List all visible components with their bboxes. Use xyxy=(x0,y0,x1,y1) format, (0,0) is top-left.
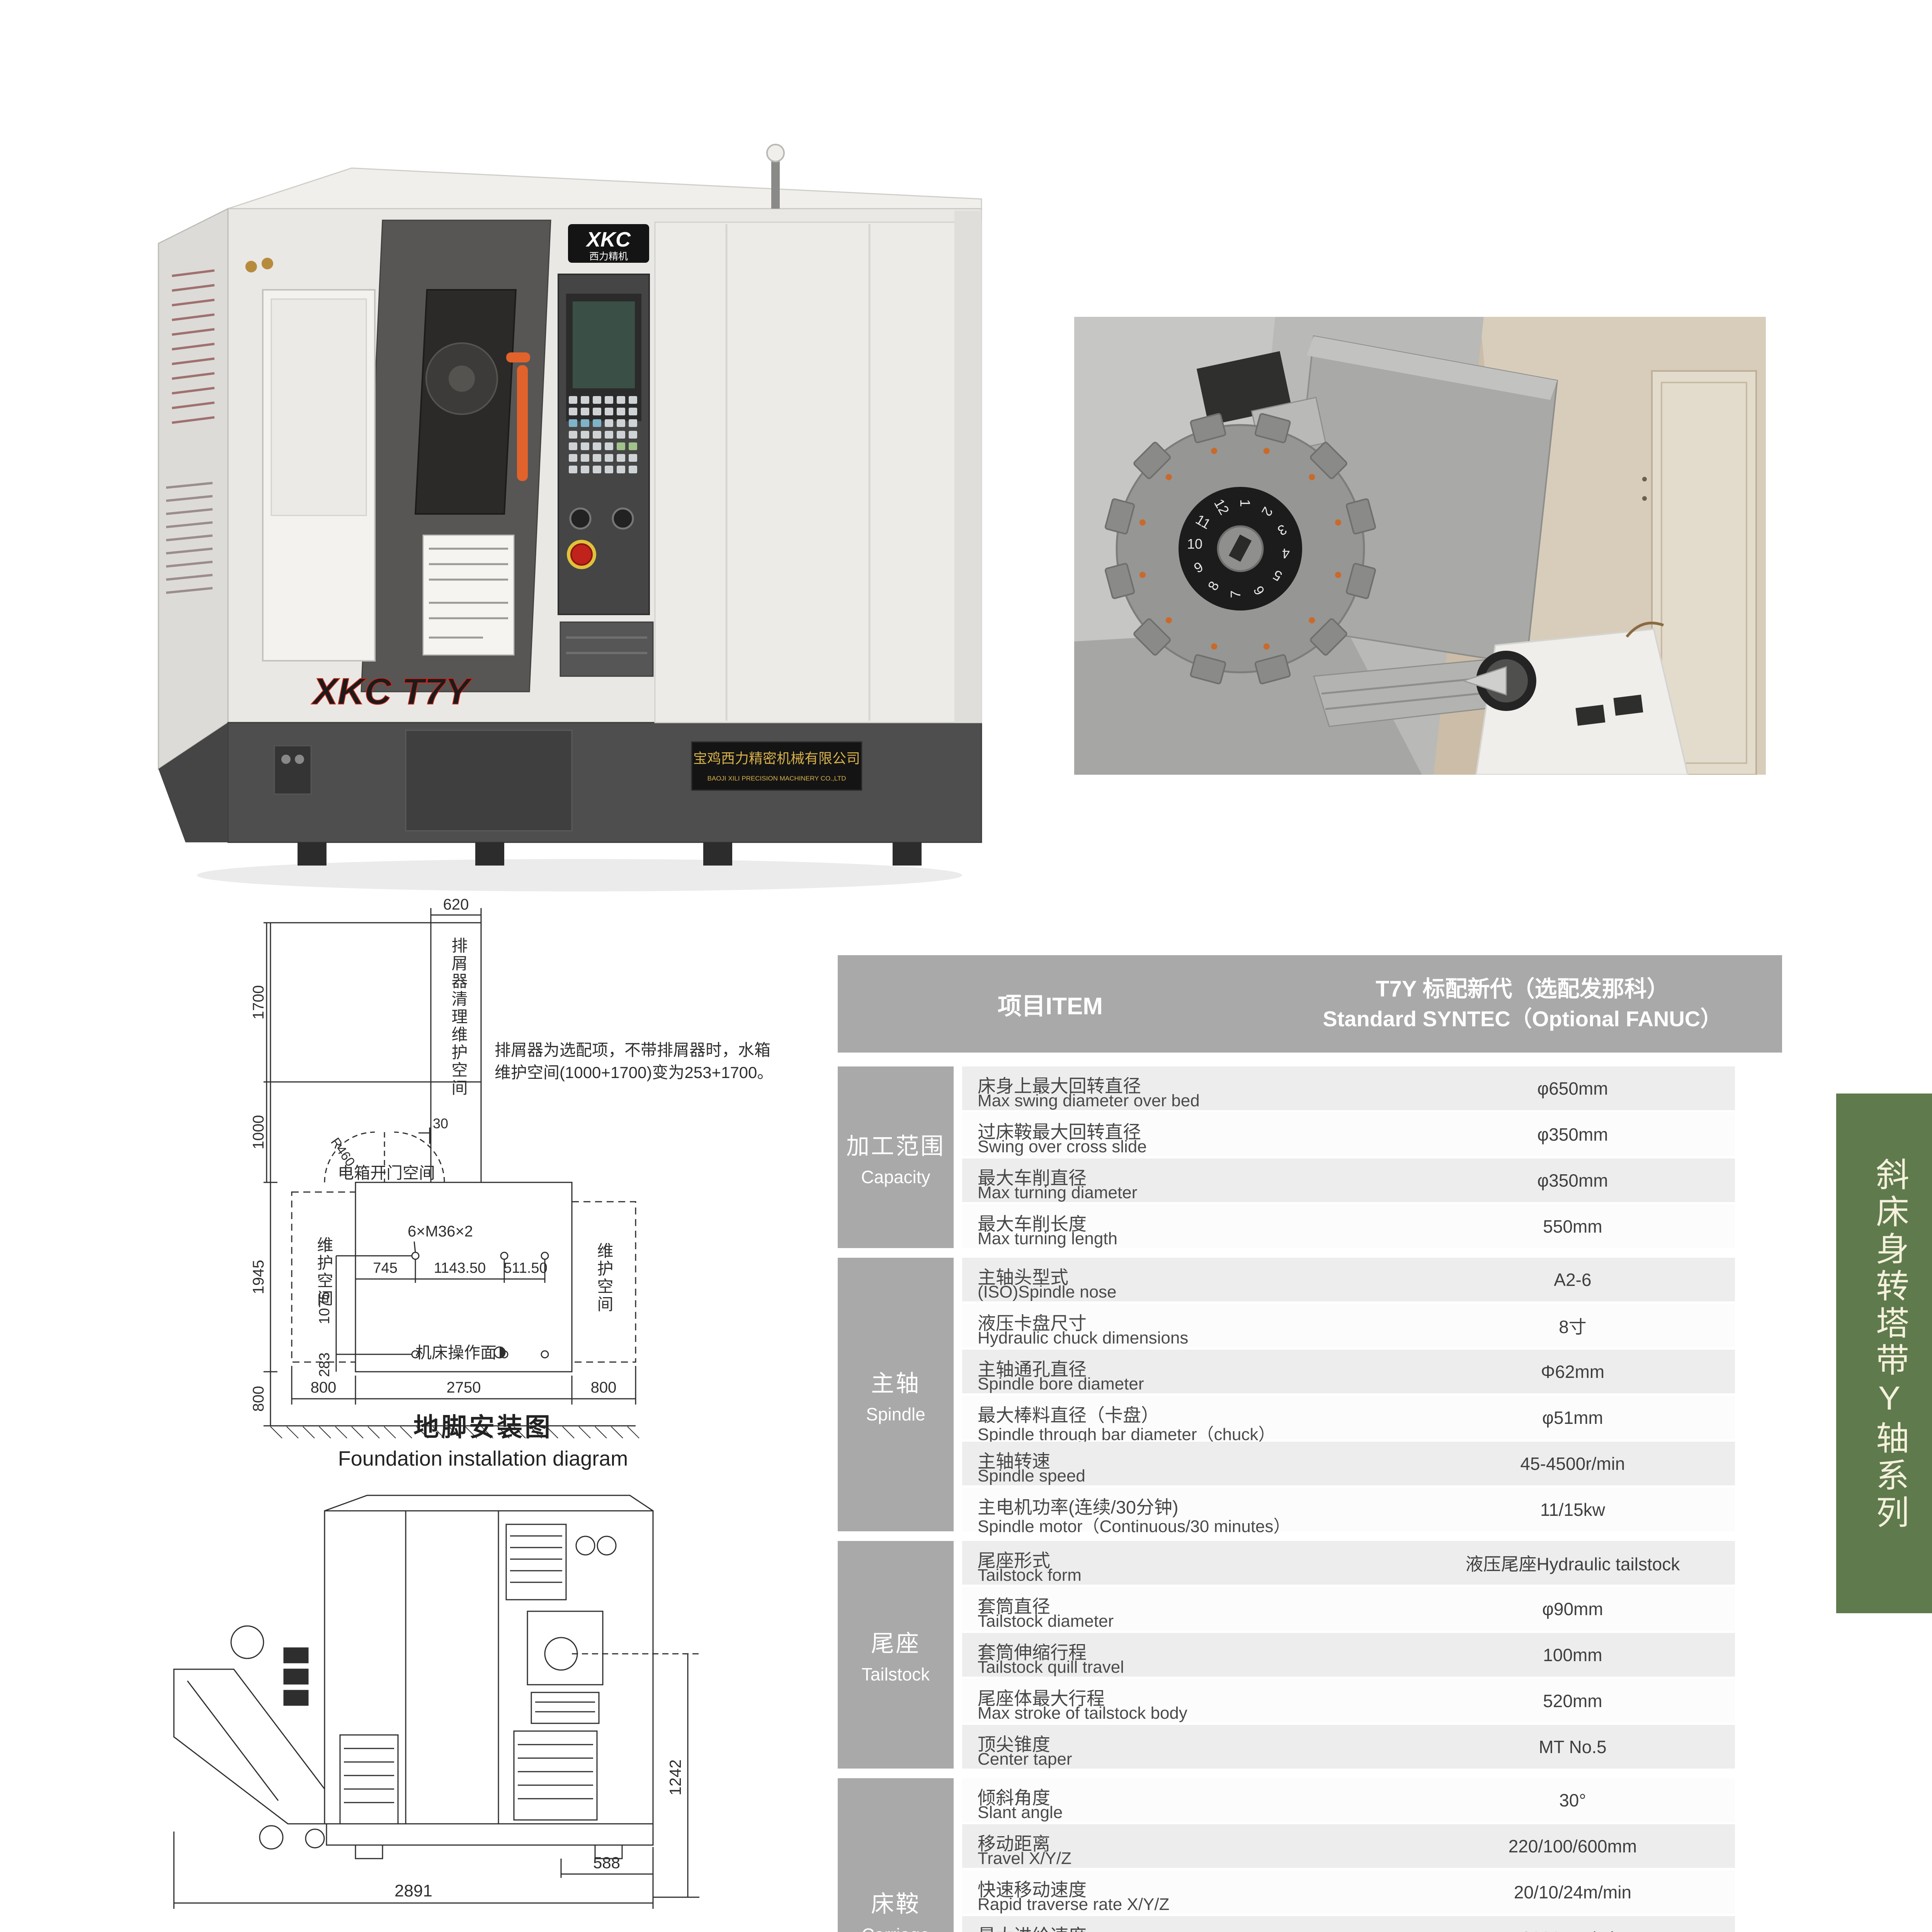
door-handle xyxy=(517,365,528,481)
spec-row: 最大车削长度Max turning length550mm xyxy=(962,1204,1735,1248)
label-maintain-right: 维护空间 xyxy=(592,1242,616,1313)
spec-row: 主轴头型式(ISO)Spindle noseA2-6 xyxy=(962,1258,1735,1301)
spec-table-body: 加工范围Capacity床身上最大回转直径Max swing diameter … xyxy=(838,1066,1782,1932)
spec-row: 主电机功率(连续/30分钟)Spindle motor（Continuous/3… xyxy=(962,1488,1735,1531)
spec-value: 45-4500r/min xyxy=(1406,1442,1739,1485)
spec-value: 8寸 xyxy=(1406,1304,1739,1347)
spec-row: 套筒伸缩行程Tailstock quill travel100mm xyxy=(962,1633,1735,1677)
xkc-logo-sub: 西力精机 xyxy=(589,251,628,262)
spec-row: 主轴转速Spindle speed45-4500r/min xyxy=(962,1442,1735,1485)
label-maintain-left: 维护空间 xyxy=(312,1236,336,1308)
spec-item-en: Swing over cross slide xyxy=(978,1137,1147,1156)
spec-item-en: (ISO)Spindle nose xyxy=(978,1282,1117,1302)
note-line1: 排屑器为选配项，不带排屑器时，水箱 xyxy=(495,1041,770,1059)
spec-table-header: 项目ITEM T7Y 标配新代（选配发那科） Standard SYNTEC（O… xyxy=(838,955,1782,1053)
switch-dot xyxy=(281,755,291,764)
spec-value: MT No.5 xyxy=(1406,1725,1739,1769)
spec-item-en: Center taper xyxy=(978,1750,1072,1769)
control-screen xyxy=(573,301,635,388)
spec-row: 最大进给速度Max feed speed8000mm/min xyxy=(962,1916,1735,1932)
section-label-zh: 床鞍 xyxy=(871,1885,920,1919)
chip-door xyxy=(406,730,572,831)
foundation-title: 地脚安装图 Foundation installation diagram xyxy=(155,1406,811,1471)
spec-row: 床身上最大回转直径Max swing diameter over bedφ650… xyxy=(962,1066,1735,1110)
control-knob xyxy=(613,509,633,529)
spec-item-en: Max turning length xyxy=(978,1229,1117,1248)
signal-lamp xyxy=(767,145,784,162)
dim-588: 588 xyxy=(593,1854,620,1872)
window-turret-hub xyxy=(449,366,475,392)
section-label-zh: 主轴 xyxy=(871,1365,920,1398)
spec-item-en: Max swing diameter over bed xyxy=(978,1091,1200,1111)
foundation-diagram: 620 1700 1000 1945 800 745 1143.50 511.5… xyxy=(155,896,811,1472)
spec-value: φ51mm xyxy=(1406,1396,1739,1439)
section-label-capacity: 加工范围Capacity xyxy=(838,1066,954,1248)
spec-value: 30° xyxy=(1406,1778,1739,1822)
section-label-en: Capacity xyxy=(861,1167,930,1187)
dim-283: 283 xyxy=(316,1352,333,1377)
fitting-knob xyxy=(262,258,273,269)
spec-value: 100mm xyxy=(1406,1633,1739,1677)
spec-row: 液压卡盘尺寸Hydraulic chuck dimensions8寸 xyxy=(962,1304,1735,1347)
spec-value: 液压尾座Hydraulic tailstock xyxy=(1406,1541,1739,1585)
spec-row: 最大棒料直径（卡盘）Spindle through bar diameter（c… xyxy=(962,1396,1735,1439)
spec-value: A2-6 xyxy=(1406,1258,1739,1301)
spec-item-zh: 最大进给速度 xyxy=(978,1921,1087,1932)
dim-1242: 1242 xyxy=(666,1759,684,1795)
turret-number: 1 xyxy=(1237,499,1253,507)
pendant-tray xyxy=(560,622,653,676)
spec-value: 220/100/600mm xyxy=(1406,1824,1739,1868)
spec-item-en: Spindle motor（Continuous/30 minutes） xyxy=(978,1512,1291,1537)
label-bolt: 6×M36×2 xyxy=(408,1223,473,1240)
dim-620: 620 xyxy=(443,896,469,913)
spec-item-en: Slant angle xyxy=(978,1803,1063,1822)
spec-value: 8000mm/min xyxy=(1406,1916,1739,1932)
section-label-zh: 尾座 xyxy=(871,1625,920,1658)
spec-item-en: Tailstock diameter xyxy=(978,1612,1114,1631)
header-model-label: T7Y 标配新代（选配发那科） Standard SYNTEC（Optional… xyxy=(1263,974,1782,1034)
spec-item-en: Hydraulic chuck dimensions xyxy=(978,1328,1188,1348)
spec-item-en: Max turning diameter xyxy=(978,1183,1137,1202)
dim-800-b1: 800 xyxy=(311,1379,337,1396)
spec-item-en: Tailstock form xyxy=(978,1566,1082,1585)
turret-number: 4 xyxy=(1282,546,1290,561)
turret-number: 7 xyxy=(1228,590,1243,598)
dim-1700: 1700 xyxy=(250,985,267,1020)
machine-base xyxy=(228,723,981,842)
series-sidebar: 斜床身转塔带Y轴系列 xyxy=(1836,1094,1932,1613)
foundation-title-zh: 地脚安装图 xyxy=(155,1406,811,1444)
section-label-en: Spindle xyxy=(866,1404,925,1425)
spec-row: 快速移动速度Rapid traverse rate X/Y/Z20/10/24m… xyxy=(962,1870,1735,1914)
foundation-svg: 620 1700 1000 1945 800 745 1143.50 511.5… xyxy=(155,896,811,1472)
spec-item-en: Tailstock quill travel xyxy=(978,1658,1124,1677)
machine-photo: 宝鸡西力精密机械有限公司 BAOJI XILI PRECISION MACHIN… xyxy=(135,128,1009,900)
machine-foot xyxy=(703,842,732,866)
tailstock-pad xyxy=(1613,695,1643,716)
section-label-en: Tailstock xyxy=(862,1664,930,1685)
label-chip-zone: 排屑器清理维护空间 xyxy=(447,937,470,1097)
spec-value: φ650mm xyxy=(1406,1066,1739,1110)
spec-row: 移动距离Travel X/Y/Z220/100/600mm xyxy=(962,1824,1735,1868)
hinge-dot xyxy=(1642,477,1647,481)
section-label-carriage: 床鞍Carriage xyxy=(838,1778,954,1932)
signal-lamp-pole xyxy=(771,156,780,209)
section-label-en: Carriage xyxy=(862,1924,930,1932)
dim-2750: 2750 xyxy=(447,1379,481,1396)
control-knob xyxy=(570,509,590,529)
dim-745: 745 xyxy=(373,1260,397,1276)
spec-item-en: Max stroke of tailstock body xyxy=(978,1704,1187,1723)
machine-foot xyxy=(893,842,922,866)
estop-button xyxy=(571,544,592,565)
turret-number: 10 xyxy=(1187,536,1202,552)
fitting-knob xyxy=(245,261,257,272)
door-handle-top xyxy=(506,352,530,362)
xkc-logo-text: XKC xyxy=(585,228,631,251)
spec-value: 20/10/24m/min xyxy=(1406,1870,1739,1914)
section-label-tailstock: 尾座Tailstock xyxy=(838,1541,954,1769)
dim-1945: 1945 xyxy=(250,1260,267,1294)
header-item-label: 项目ITEM xyxy=(838,986,1263,1021)
spec-value: φ90mm xyxy=(1406,1587,1739,1631)
badge-company-zh: 宝鸡西力精密机械有限公司 xyxy=(693,750,860,766)
header-model-line2: Standard SYNTEC（Optional FANUC） xyxy=(1263,1004,1782,1034)
spec-value: Φ62mm xyxy=(1406,1350,1739,1393)
dim-511: 511.50 xyxy=(503,1260,547,1276)
spec-row: 过床鞍最大回转直径Swing over cross slideφ350mm xyxy=(962,1112,1735,1156)
machine-foot xyxy=(298,842,327,866)
spec-value: 550mm xyxy=(1406,1204,1739,1248)
dim-800-b2: 800 xyxy=(591,1379,617,1396)
spec-row: 倾斜角度Slant angle30° xyxy=(962,1778,1735,1822)
spec-value: φ350mm xyxy=(1406,1112,1739,1156)
section-label-zh: 加工范围 xyxy=(846,1128,945,1161)
spec-value: φ350mm xyxy=(1406,1158,1739,1202)
spec-item-en: Spindle bore diameter xyxy=(978,1374,1144,1394)
section-label-spindle: 主轴Spindle xyxy=(838,1258,954,1531)
tailstock-pad xyxy=(1575,705,1605,726)
spec-value: 520mm xyxy=(1406,1679,1739,1723)
switch-dot xyxy=(295,755,304,764)
tailstock-assembly xyxy=(1464,623,1688,775)
spec-item-en: Rapid traverse rate X/Y/Z xyxy=(978,1895,1169,1914)
header-model-line1: T7Y 标配新代（选配发那科） xyxy=(1263,974,1782,1004)
turret-photo: 123456789101112 xyxy=(1074,317,1766,775)
spec-row: 最大车削直径Max turning diameterφ350mm xyxy=(962,1158,1735,1202)
door-panel xyxy=(271,299,366,515)
base-switch-box xyxy=(274,746,311,794)
spec-row: 尾座体最大行程Max stroke of tailstock body520mm xyxy=(962,1679,1735,1723)
side-view-drawing: 1242 588 2891 xyxy=(151,1488,827,1924)
machine-left-side xyxy=(158,209,228,769)
dim-2891: 2891 xyxy=(395,1881,432,1900)
series-title: 斜床身转塔带Y轴系列 xyxy=(1866,1157,1914,1613)
page-canvas: 宝鸡西力精密机械有限公司 BAOJI XILI PRECISION MACHIN… xyxy=(0,0,1932,1932)
badge-company-en: BAOJI XILI PRECISION MACHINERY CO.,LTD xyxy=(707,775,846,782)
spec-item-en: Travel X/Y/Z xyxy=(978,1849,1071,1868)
dim-30: 30 xyxy=(433,1116,448,1131)
machine-roof xyxy=(228,168,981,211)
machine-right-body xyxy=(655,222,981,723)
spec-row: 顶尖锥度Center taperMT No.5 xyxy=(962,1725,1735,1769)
spec-row: 套筒直径Tailstock diameterφ90mm xyxy=(962,1587,1735,1631)
hinge-dot xyxy=(1642,496,1647,501)
note-line2: 维护空间(1000+1700)变为253+1700。 xyxy=(495,1063,773,1082)
foundation-title-en: Foundation installation diagram xyxy=(155,1447,811,1471)
label-door-zone: 电箱开门空间 xyxy=(338,1164,435,1182)
label-operate-face: 机床操作面 xyxy=(415,1344,497,1362)
spec-row: 主轴通孔直径Spindle bore diameterΦ62mm xyxy=(962,1350,1735,1393)
spec-item-en: Spindle speed xyxy=(978,1466,1085,1486)
dim-1000: 1000 xyxy=(250,1115,267,1150)
dim-1143: 1143.50 xyxy=(434,1260,486,1276)
spec-row: 尾座形式Tailstock form液压尾座Hydraulic tailstoc… xyxy=(962,1541,1735,1585)
machine-foot xyxy=(475,842,504,866)
machine-right-edge xyxy=(954,211,981,723)
spec-value: 11/15kw xyxy=(1406,1488,1739,1531)
front-model-logo: XKC T7Y xyxy=(311,671,473,712)
